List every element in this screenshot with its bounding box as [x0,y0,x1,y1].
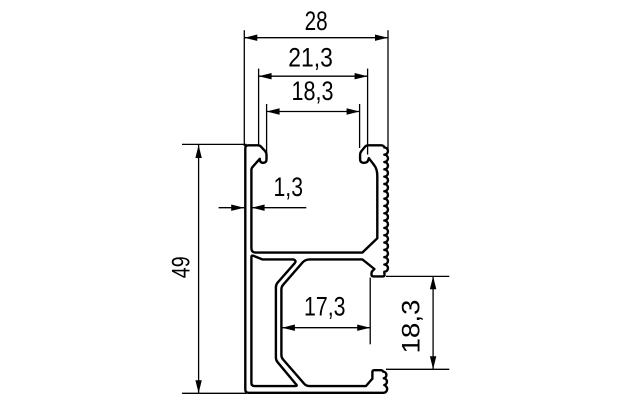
svg-text:18,3: 18,3 [397,300,425,354]
svg-text:1,3: 1,3 [274,172,304,202]
svg-text:28: 28 [305,6,328,36]
svg-text:49: 49 [168,256,196,278]
svg-text:21,3: 21,3 [288,42,333,72]
svg-text:18,3: 18,3 [292,76,334,106]
svg-text:17,3: 17,3 [304,291,346,321]
